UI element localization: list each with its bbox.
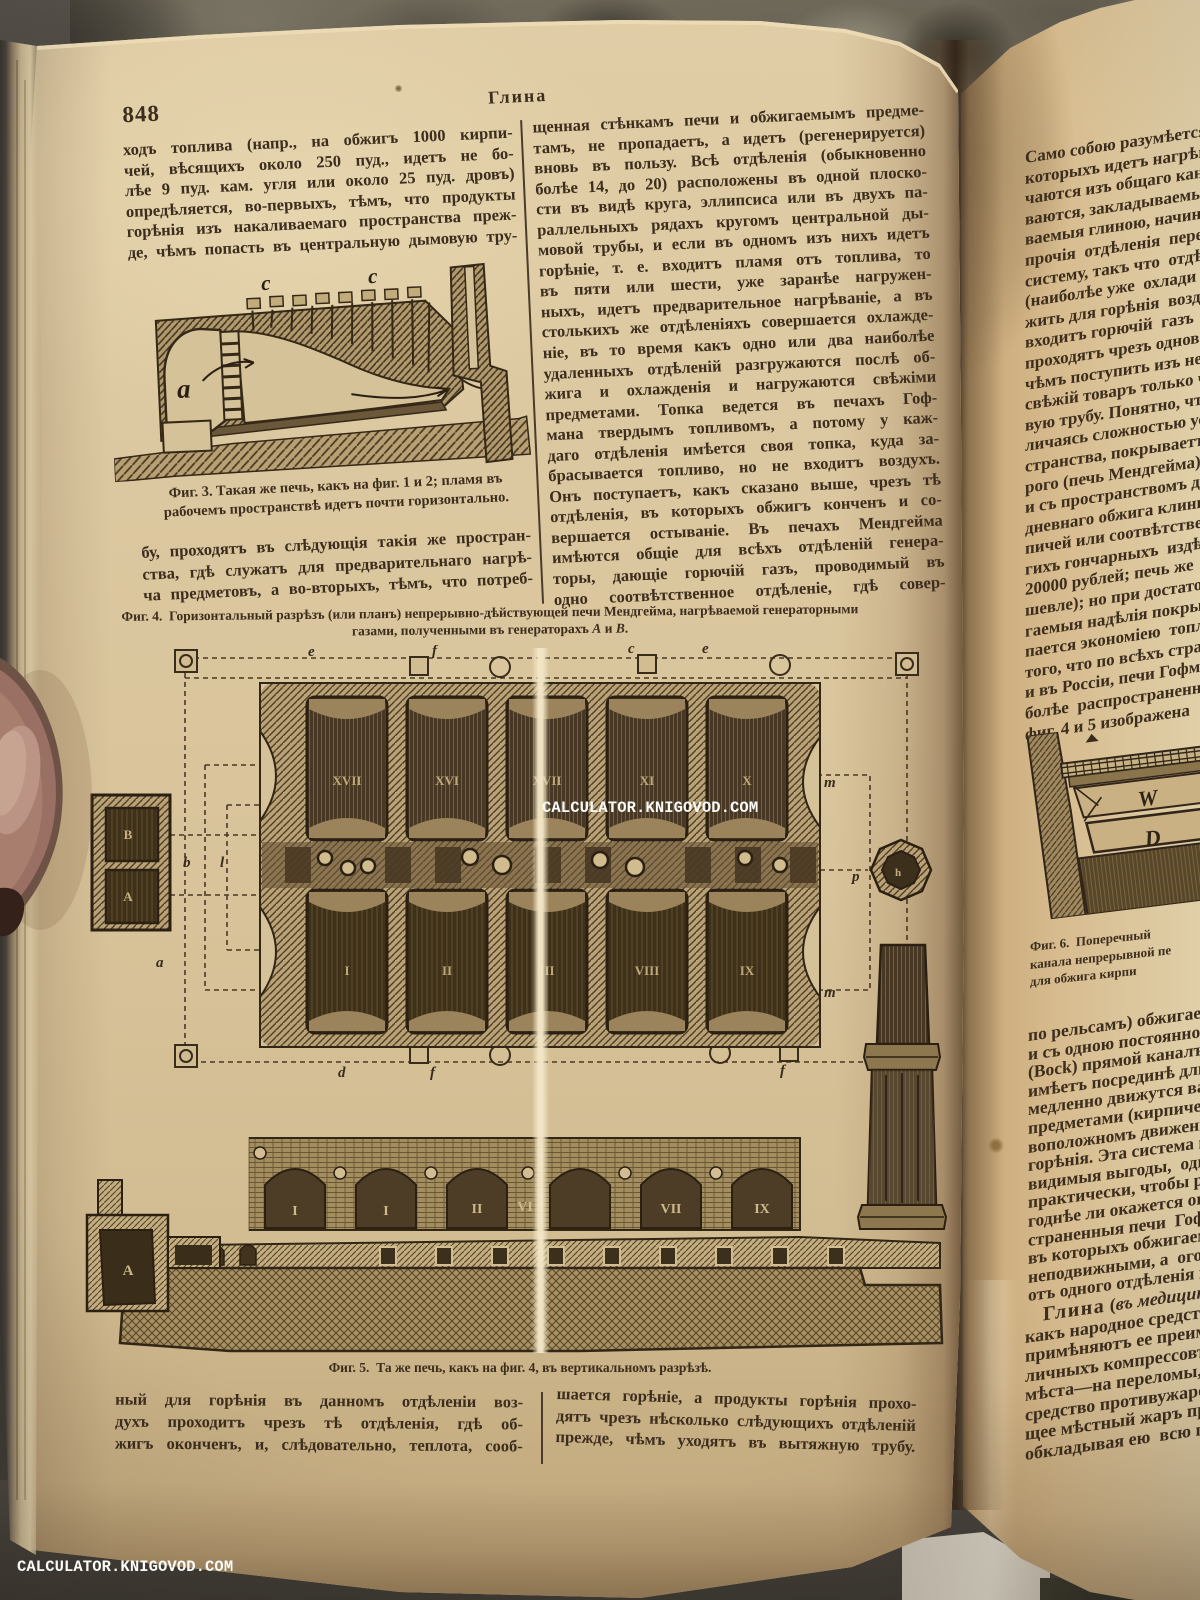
svg-text:X: X (742, 773, 752, 788)
svg-text:c: c (367, 264, 378, 288)
svg-text:VII: VII (660, 1202, 681, 1217)
svg-text:a: a (176, 373, 191, 404)
svg-text:I: I (292, 1204, 297, 1219)
svg-text:b: b (183, 855, 191, 871)
svg-text:f: f (432, 645, 439, 659)
svg-text:XVII: XVII (333, 773, 362, 788)
svg-text:A: A (123, 1263, 134, 1279)
svg-text:d: d (338, 1065, 346, 1081)
svg-text:f: f (430, 1065, 437, 1081)
svg-text:e: e (702, 645, 709, 657)
svg-text:VIII: VIII (635, 963, 660, 978)
svg-text:A: A (123, 889, 133, 904)
svg-text:m: m (824, 985, 836, 1001)
svg-text:B: B (124, 827, 133, 842)
svg-text:I: I (383, 1204, 388, 1219)
svg-text:XI: XI (640, 773, 654, 788)
svg-text:VI: VI (517, 1200, 533, 1215)
svg-text:IX: IX (740, 963, 755, 978)
svg-text:c: c (628, 645, 635, 657)
svg-text:D: D (1142, 824, 1162, 851)
svg-text:I: I (344, 963, 349, 978)
svg-text:l: l (220, 855, 225, 871)
svg-text:h: h (895, 867, 901, 879)
svg-text:e: e (308, 645, 315, 660)
svg-text:II: II (472, 1202, 483, 1217)
svg-text:XVI: XVI (435, 773, 459, 788)
svg-text:II: II (442, 963, 452, 978)
svg-text:a: a (156, 955, 164, 971)
svg-text:IX: IX (754, 1202, 770, 1217)
svg-text:m: m (824, 775, 836, 791)
svg-text:f: f (780, 1063, 787, 1079)
svg-text:c: c (261, 271, 272, 295)
svg-text:p: p (850, 869, 860, 885)
